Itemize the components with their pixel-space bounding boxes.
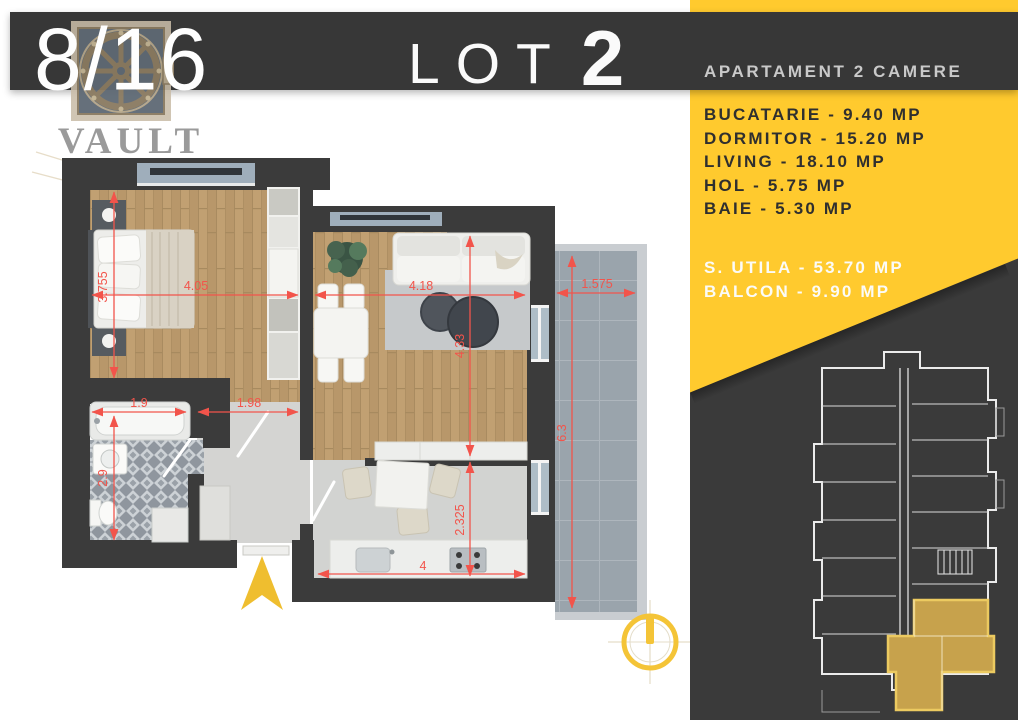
apartment-subtitle: APARTAMENT 2 CAMERE [704,62,962,82]
sideboard [375,442,527,460]
lot-word: LOT [408,34,567,94]
flyer-page: BUCATARIE - 9.40 MP DORMITOR - 15.20 MP … [0,0,1018,720]
entrance-arrow-icon [241,556,283,610]
highlighted-unit [888,600,994,710]
dim-bedroom-width: 4.05 [184,279,208,293]
kitchen-chair [342,466,372,499]
dim-balcony-width: 1.575 [581,277,612,291]
dim-living-width: 4.18 [409,279,433,293]
dim-bath-width: 1.9 [130,396,147,410]
lot-number: 2 [581,22,624,94]
total-area-item: S. UTILA - 53.70 MP [704,256,904,280]
balcony-parapet [637,246,647,618]
kitchen-sink [356,548,390,572]
dim-living-height: 4.33 [453,334,467,358]
room-area-item: LIVING - 18.10 MP [704,150,926,174]
dim-hall-width: 1.98 [237,396,261,410]
dim-kitchen-height: 2.325 [453,504,467,535]
stove [450,548,486,572]
building-corridor [900,368,908,674]
kitchen-table [375,461,429,510]
hall-cabinet [200,486,230,540]
room-area-item: DORMITOR - 15.20 MP [704,127,926,151]
room-area-item: BAIE - 5.30 MP [704,197,926,221]
dim-bath-height: 2.9 [96,469,110,486]
dim-kitchen-width: 4 [420,559,427,573]
lot-title: LOT 2 [408,12,624,94]
unit-number: 8/16 [34,15,209,105]
dim-bedroom-height: 3.755 [96,271,110,302]
room-area-item: HOL - 5.75 MP [704,174,926,198]
floor-plan: 3.755 4.05 4.18 1.575 4.33 2.325 6.3 1.9… [30,140,690,720]
total-area-list: S. UTILA - 53.70 MP BALCON - 9.90 MP [704,256,904,304]
entrance-door [243,546,289,555]
room-area-item: BUCATARIE - 9.40 MP [704,103,926,127]
dim-balcony-height: 6.3 [555,424,569,441]
room-area-list: BUCATARIE - 9.40 MP DORMITOR - 15.20 MP … [704,103,926,221]
total-area-item: BALCON - 9.90 MP [704,280,904,304]
washer [152,508,188,542]
building-key-plan [792,342,1018,720]
